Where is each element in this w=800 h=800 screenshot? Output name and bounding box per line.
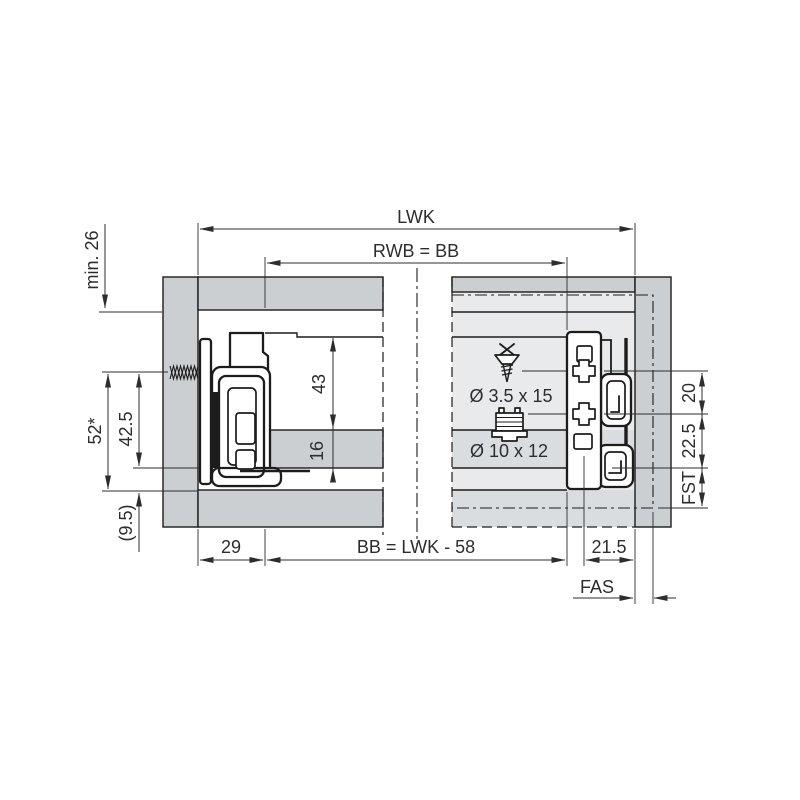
label-42-5: 42.5 [116, 411, 136, 446]
label-22-5: 22.5 [679, 423, 699, 458]
label-front-screw-size: Ø 3.5 x 15 [469, 386, 552, 406]
cabinet-bottom-rail-left [198, 490, 383, 527]
profile-fold-island [236, 413, 255, 444]
bracket-rect-hole [574, 434, 592, 449]
cabinet-top-rail-left [198, 277, 383, 310]
profile-fold-hook [236, 450, 255, 469]
label-rwb-bb: RWB = BB [373, 241, 459, 261]
technical-drawing-page: LWK RWB = BB min. 26 52* 42.5 (9.5) 43 1… [0, 0, 800, 800]
label-43: 43 [309, 374, 329, 394]
label-21-5: 21.5 [591, 537, 626, 557]
label-fst: FST [679, 471, 699, 505]
left-section-view [163, 277, 383, 535]
label-29: 29 [221, 537, 241, 557]
drawer-side-top-edge [265, 333, 383, 337]
label-lwk: LWK [397, 207, 435, 227]
cabinet-top-rail-right [452, 277, 635, 292]
label-20: 20 [679, 383, 699, 403]
label-fas: FAS [580, 577, 614, 597]
profile-back-plate [200, 339, 211, 484]
drawing-canvas: LWK RWB = BB min. 26 52* 42.5 (9.5) 43 1… [0, 0, 800, 800]
label-9-5: (9.5) [116, 504, 136, 541]
label-bb-formula: BB = LWK - 58 [357, 537, 475, 557]
label-16: 16 [307, 441, 327, 461]
euro-dowel-icon [492, 408, 527, 441]
profile-cut-fill [213, 392, 218, 468]
cabinet-side-panel-left [163, 277, 198, 527]
label-min-26: min. 26 [82, 230, 102, 289]
label-52: 52* [85, 417, 105, 444]
label-euro-dowel-size: Ø 10 x 12 [470, 441, 548, 461]
